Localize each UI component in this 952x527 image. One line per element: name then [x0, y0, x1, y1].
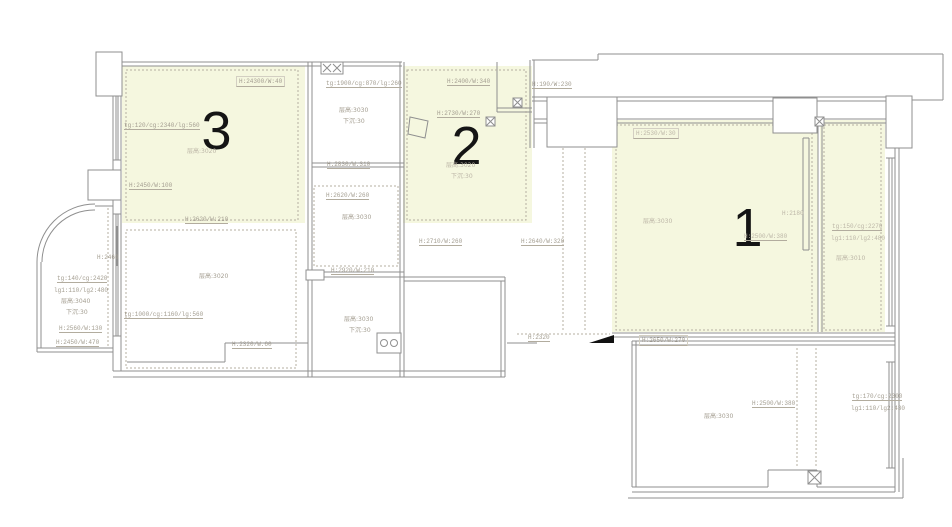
dimension-label: H:2180	[782, 210, 804, 217]
dimension-label: H:2640/W:320	[521, 238, 564, 246]
dimension-label: H:2650/W:270	[639, 335, 688, 346]
ceiling-height-label: 层高:3020	[187, 148, 216, 155]
dimension-label: H:2450/W:470	[56, 339, 99, 347]
ceiling-height-label: 层高:3030	[342, 214, 371, 221]
dimension-label: H:2320	[528, 334, 550, 342]
dimension-label: lg1:110/lg2:480	[831, 235, 885, 242]
dimension-label: H:2320/W:60	[232, 341, 272, 349]
dimension-label: H:2620/W:260	[326, 192, 369, 200]
hatch-square-icon	[815, 117, 824, 126]
dimension-label: H:2500/W:380	[744, 233, 787, 241]
dimension-label: lg1:110/lg2:430	[851, 405, 905, 412]
sink-icon	[377, 333, 401, 353]
dimension-label: H:2530/W:30	[633, 128, 679, 139]
stove-icon	[321, 62, 343, 74]
dimension-label: tg:150/cg:2270	[832, 223, 882, 231]
dimension-label: lg1:110/lg2:480	[54, 287, 108, 294]
hatch-square-icon	[513, 98, 522, 107]
drop-height-label: 下沉:30	[66, 309, 88, 316]
ceiling-height-label: 层高:3010	[836, 255, 865, 262]
corner-box	[886, 96, 912, 148]
dimension-label: H:2500/W:380	[752, 400, 795, 408]
ceiling-height-label: 层高:3030	[643, 218, 672, 225]
pilaster-box	[88, 170, 121, 200]
room-1-highlight	[612, 120, 818, 332]
drop-height-label: 下沉:30	[349, 327, 371, 334]
dimension-label: tg:1900/cg:870/lg:260	[326, 80, 402, 88]
level-marker-triangle-icon	[589, 335, 614, 343]
ceiling-height-label: 层高:3030	[704, 413, 733, 420]
dimension-label: H:24300/W:40	[236, 76, 285, 87]
entry-closet-box	[547, 97, 617, 147]
drop-height-label: 下沉:30	[451, 173, 473, 180]
door-jamb-box	[306, 270, 324, 280]
ceiling-height-label: 层高:3020	[446, 162, 475, 169]
hatch-square-icon	[808, 471, 821, 484]
ceiling-height-label: 层高:3040	[61, 298, 90, 305]
dimension-label: H:2710/W:260	[419, 238, 462, 246]
dimension-label: H:2460	[97, 254, 119, 261]
dimension-label: H:190/W:230	[532, 81, 572, 89]
room-1-number: 1	[717, 201, 777, 255]
ceiling-height-label: 层高:3030	[344, 316, 373, 323]
dimension-label: H:2560/W:130	[59, 325, 102, 333]
floor-plan-canvas: 3 2 1 H:24300/W:40 tg:120/cg:2340/lg:560…	[0, 0, 952, 527]
door-box	[773, 98, 817, 133]
dimension-label: H:2400/W:340	[447, 78, 490, 86]
dimension-label: tg:1000/cg:1160/lg:560	[124, 311, 203, 319]
drop-height-label: 下沉:30	[343, 118, 365, 125]
ceiling-height-label: 层高:3030	[339, 107, 368, 114]
dimension-label: tg:120/cg:2340/lg:560	[124, 122, 200, 130]
curved-wall-arc	[37, 204, 95, 262]
ceiling-height-label: 层高:3020	[199, 273, 228, 280]
dimension-label: H:2730/W:270	[437, 110, 480, 118]
dimension-label: H:2450/W:100	[129, 182, 172, 190]
dimension-label: H:2920/W:210	[331, 267, 374, 275]
dimension-label: H:2620/W:210	[185, 216, 228, 224]
shaft-box	[96, 52, 122, 96]
dimension-label: H:2830/W:310	[327, 161, 370, 169]
dimension-label: tg:170/cg:2300	[852, 393, 902, 401]
dimension-label: tg:140/cg:2420	[57, 275, 107, 283]
